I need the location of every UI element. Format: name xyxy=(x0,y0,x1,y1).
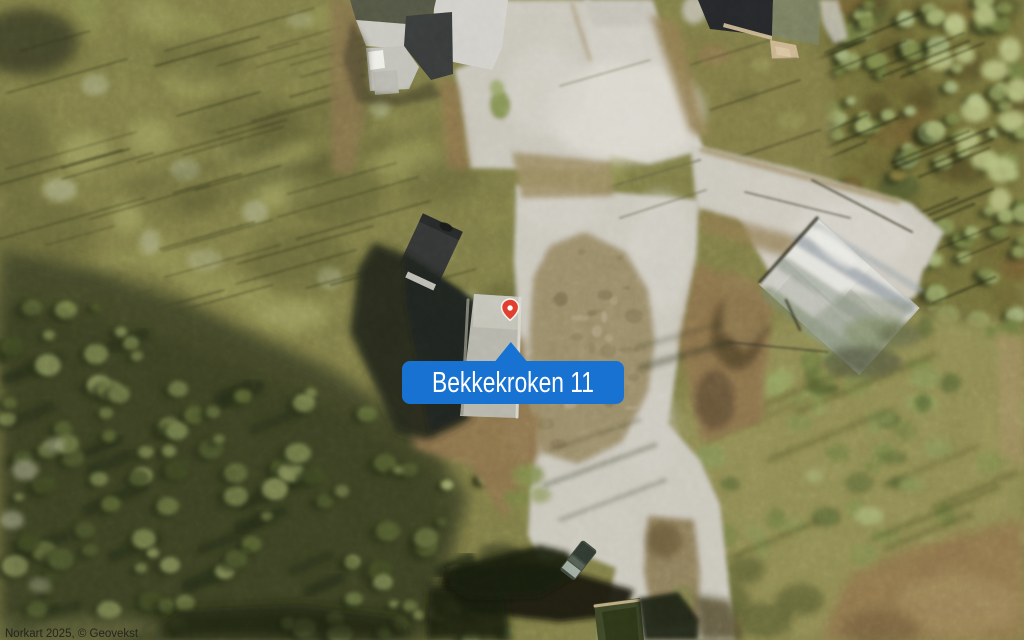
svg-text:Bekkekroken 11: Bekkekroken 11 xyxy=(432,367,594,399)
svg-text:Norkart 2025, © Geovekst: Norkart 2025, © Geovekst xyxy=(5,628,139,640)
